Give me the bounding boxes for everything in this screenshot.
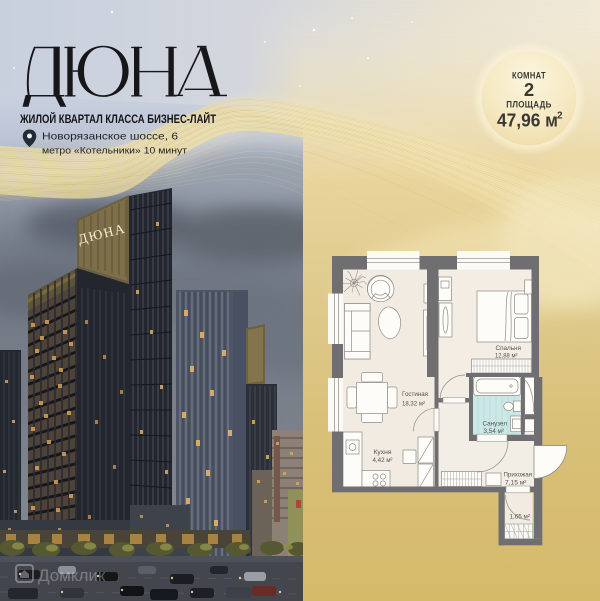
svg-text:Кухня: Кухня xyxy=(374,449,392,456)
svg-text:3,54 м²: 3,54 м² xyxy=(484,428,505,435)
svg-text:Домклик: Домклик xyxy=(38,566,106,585)
svg-text:Санузел: Санузел xyxy=(483,421,508,428)
svg-text:7,15 м²: 7,15 м² xyxy=(505,480,527,487)
svg-text:4,42 м²: 4,42 м² xyxy=(373,457,394,464)
svg-text:Новорязанское шоссе, 6: Новорязанское шоссе, 6 xyxy=(42,132,178,143)
svg-text:2: 2 xyxy=(557,111,563,122)
svg-text:Спальня: Спальня xyxy=(496,345,522,352)
svg-text:Гостиная: Гостиная xyxy=(402,391,428,398)
svg-text:47,96 м: 47,96 м xyxy=(497,111,558,131)
svg-text:1,65 м²: 1,65 м² xyxy=(510,514,531,521)
svg-text:18,32 м²: 18,32 м² xyxy=(402,401,426,408)
svg-text:метро «Котельники» 10 минут: метро «Котельники» 10 минут xyxy=(42,146,188,157)
svg-text:ЖИЛОЙ КВАРТАЛ КЛАССА БИЗНЕС-ЛА: ЖИЛОЙ КВАРТАЛ КЛАССА БИЗНЕС-ЛАЙТ xyxy=(19,111,216,126)
svg-text:Прихожая: Прихожая xyxy=(504,472,533,479)
svg-text:12,88 м²: 12,88 м² xyxy=(495,353,518,360)
svg-text:ПЛОЩАДЬ: ПЛОЩАДЬ xyxy=(506,99,552,110)
svg-text:2: 2 xyxy=(524,79,534,100)
